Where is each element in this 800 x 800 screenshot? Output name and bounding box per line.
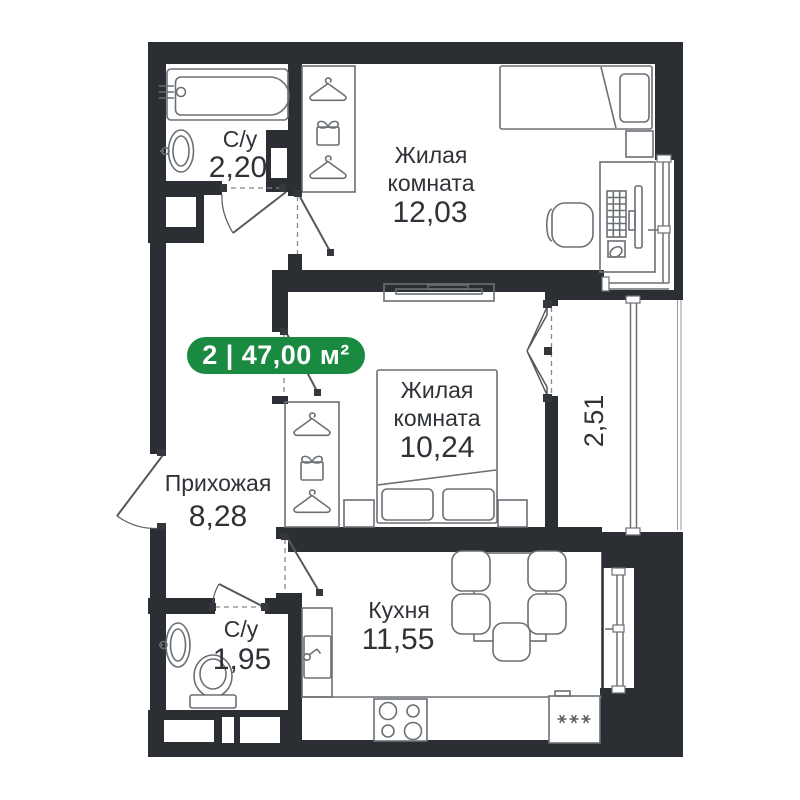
area-badge: 2 | 47,00 м²	[187, 337, 365, 374]
wall-segment	[556, 270, 604, 300]
hanger-icon	[294, 413, 330, 435]
bathroom-top-name: С/у	[223, 126, 258, 152]
monitor	[635, 186, 642, 248]
bathroom-bottom-name: С/у	[224, 616, 259, 642]
chair	[452, 594, 490, 634]
hanger-icon	[294, 490, 330, 512]
floor-plan-page: С/у 2,20 Жилая комната 12,03 Жилая комна…	[0, 0, 800, 800]
shaft-niche	[164, 720, 214, 742]
bathtub	[159, 69, 289, 120]
shaft-niche	[166, 197, 196, 227]
wall-segment	[674, 42, 683, 290]
hanger-icon	[310, 156, 346, 178]
wall-segment	[276, 593, 302, 601]
hallway-area: 8,28	[189, 500, 247, 533]
chair	[452, 551, 490, 591]
wall-segment	[148, 598, 215, 614]
bedroom-top-name-line2: комната	[388, 170, 475, 196]
wall-segment	[148, 42, 683, 64]
nightstand	[498, 500, 527, 527]
nightstand	[344, 500, 374, 527]
wall-segment	[288, 42, 302, 192]
pillow	[382, 489, 433, 520]
bedroom-top-area: 12,03	[392, 196, 467, 229]
storage-box-icon	[301, 456, 323, 480]
storage-box-icon	[317, 121, 339, 145]
wardrobe	[302, 66, 355, 192]
shaft-niche	[271, 148, 287, 178]
balcony-area: 2,51	[579, 395, 609, 448]
shaft-niche	[222, 717, 234, 743]
kitchen-area: 11,55	[362, 623, 435, 656]
pillow	[443, 489, 494, 520]
wall-segment	[634, 568, 683, 692]
dining-set	[452, 551, 566, 661]
fridge	[549, 691, 600, 743]
faucet-icon	[304, 649, 321, 660]
balcony-french-door	[527, 300, 552, 402]
wall-segment	[602, 532, 683, 568]
nightstand	[626, 131, 653, 157]
kitchen-name: Кухня	[368, 597, 430, 623]
area-badge-label: 2 | 47,00 м²	[202, 340, 350, 370]
stove	[374, 699, 427, 741]
bathroom-bottom-area: 1,95	[213, 643, 271, 676]
hallway-name: Прихожая	[165, 470, 272, 496]
hanger-icon	[310, 78, 346, 100]
floor-plan: С/у 2,20 Жилая комната 12,03 Жилая комна…	[0, 0, 800, 800]
bedroom-middle-name-line2: комната	[394, 405, 481, 431]
bathroom-top-area: 2,20	[209, 151, 267, 184]
wall-segment	[545, 396, 558, 532]
wardrobe	[285, 402, 339, 527]
bedroom-top-door	[294, 190, 334, 256]
office-chair	[547, 203, 593, 247]
shaft-niche	[240, 717, 280, 743]
bedroom-top-name-line1: Жилая	[395, 142, 468, 168]
bedroom-middle-area: 10,24	[399, 431, 474, 464]
wall-segment	[288, 254, 302, 280]
desk	[600, 162, 655, 272]
kitchen-window	[605, 568, 625, 693]
entrance-door	[117, 449, 166, 530]
chair	[528, 594, 566, 634]
single-bed	[500, 66, 652, 129]
balcony-glazing	[626, 296, 681, 535]
wall-segment	[150, 242, 166, 454]
chair	[493, 623, 530, 661]
chair	[528, 551, 566, 591]
wall-segment	[604, 290, 683, 300]
wall-segment	[600, 688, 683, 757]
bedroom-middle-name-line1: Жилая	[401, 377, 474, 403]
bathroom-bottom-door	[209, 584, 269, 611]
wall-segment	[288, 598, 302, 740]
